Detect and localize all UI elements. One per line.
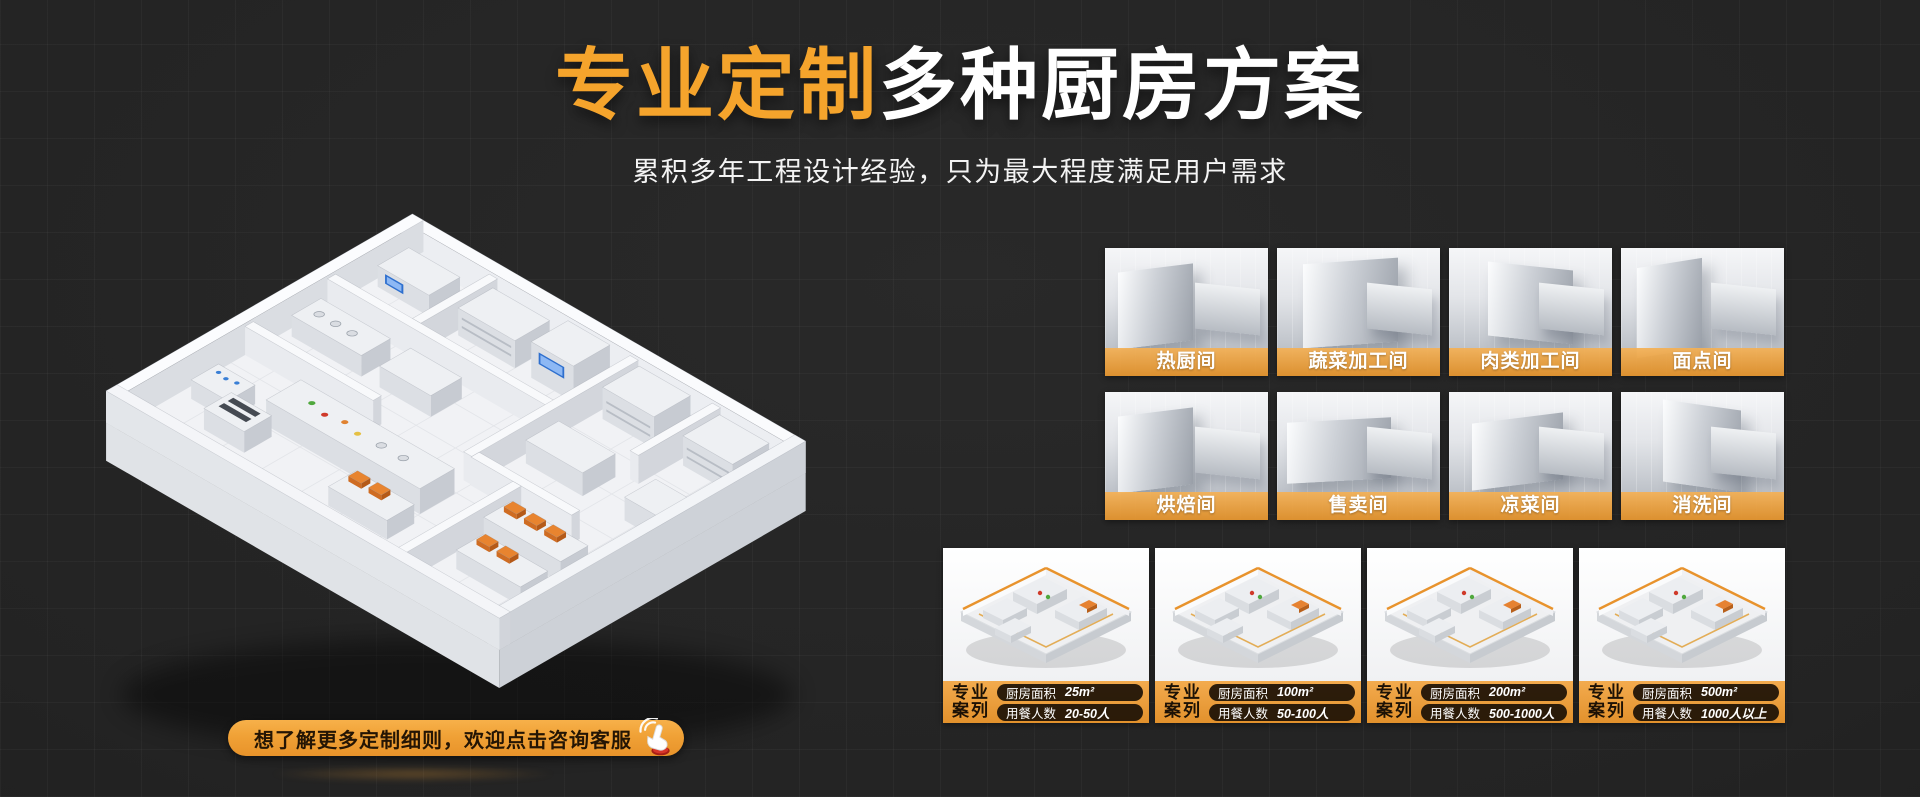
case-info-bar: 专业案列 厨房面积500m² 用餐人数1000人以上 <box>1579 681 1785 723</box>
area-pill: 厨房面积200m² <box>1421 684 1567 701</box>
room-label: 凉菜间 <box>1449 492 1612 520</box>
case-photo <box>1367 548 1573 681</box>
page-subtitle: 累积多年工程设计经验，只为最大程度满足用户需求 <box>0 150 1920 189</box>
room-label: 热厨间 <box>1105 348 1268 376</box>
consult-cta-label: 想了解更多定制细则，欢迎点击咨询客服 <box>254 724 632 753</box>
case-tile-500m2: 专业案列 厨房面积500m² 用餐人数1000人以上 <box>1579 548 1785 723</box>
case-photo <box>1579 548 1785 681</box>
room-tile-serving: 售卖间 <box>1277 392 1440 520</box>
banner: 专业定制多种厨房方案 累积多年工程设计经验，只为最大程度满足用户需求 想了解更多… <box>0 0 1920 797</box>
area-pill: 厨房面积25m² <box>997 684 1143 701</box>
hero-heading: 专业定制多种厨房方案 累积多年工程设计经验，只为最大程度满足用户需求 <box>0 46 1920 189</box>
case-tag: 专业案列 <box>1588 684 1626 720</box>
title-rest: 多种厨房方案 <box>879 41 1365 129</box>
diners-pill: 用餐人数50-100人 <box>1209 704 1355 721</box>
case-info-bar: 专业案列 厨房面积200m² 用餐人数500-1000人 <box>1367 681 1573 723</box>
floorplan-svg <box>90 196 830 792</box>
page-title: 专业定制多种厨房方案 <box>0 46 1920 126</box>
room-label: 消洗间 <box>1621 492 1784 520</box>
room-tile-vegetable-processing: 蔬菜加工间 <box>1277 248 1440 376</box>
room-tile-grid: 热厨间 蔬菜加工间 肉类加工间 面点间 烘焙间 售卖间 凉菜间 消洗间 <box>1105 248 1784 520</box>
room-tile-cold-dishes: 凉菜间 <box>1449 392 1612 520</box>
room-label: 面点间 <box>1621 348 1784 376</box>
area-pill: 厨房面积100m² <box>1209 684 1355 701</box>
case-tile-100m2: 专业案列 厨房面积100m² 用餐人数50-100人 <box>1155 548 1361 723</box>
room-tile-hot-kitchen: 热厨间 <box>1105 248 1268 376</box>
case-tag: 专业案列 <box>1164 684 1202 720</box>
case-tag: 专业案列 <box>952 684 990 720</box>
case-info-bar: 专业案列 厨房面积100m² 用餐人数50-100人 <box>1155 681 1361 723</box>
diners-pill: 用餐人数500-1000人 <box>1421 704 1567 721</box>
room-tile-dishwashing: 消洗间 <box>1621 392 1784 520</box>
room-label: 蔬菜加工间 <box>1277 348 1440 376</box>
area-pill: 厨房面积500m² <box>1633 684 1779 701</box>
diners-pill: 用餐人数1000人以上 <box>1633 704 1779 721</box>
case-info-bar: 专业案列 厨房面积25m² 用餐人数20-50人 <box>943 681 1149 723</box>
hand-click-icon <box>636 718 676 758</box>
room-label: 肉类加工间 <box>1449 348 1612 376</box>
case-tile-200m2: 专业案列 厨房面积200m² 用餐人数500-1000人 <box>1367 548 1573 723</box>
room-tile-pastry: 面点间 <box>1621 248 1784 376</box>
case-photo <box>1155 548 1361 681</box>
case-tile-25m2: 专业案列 厨房面积25m² 用餐人数20-50人 <box>943 548 1149 723</box>
case-tile-row: 专业案列 厨房面积25m² 用餐人数20-50人 专业案列 厨房面积100m² … <box>943 548 1785 723</box>
room-tile-meat-processing: 肉类加工间 <box>1449 248 1612 376</box>
kitchen-floorplan-illustration <box>90 196 830 792</box>
title-highlight: 专业定制 <box>555 41 879 129</box>
room-label: 烘焙间 <box>1105 492 1268 520</box>
diners-pill: 用餐人数20-50人 <box>997 704 1143 721</box>
room-label: 售卖间 <box>1277 492 1440 520</box>
room-tile-baking: 烘焙间 <box>1105 392 1268 520</box>
case-tag: 专业案列 <box>1376 684 1414 720</box>
consult-cta-button[interactable]: 想了解更多定制细则，欢迎点击咨询客服 <box>228 720 684 756</box>
case-photo <box>943 548 1149 681</box>
